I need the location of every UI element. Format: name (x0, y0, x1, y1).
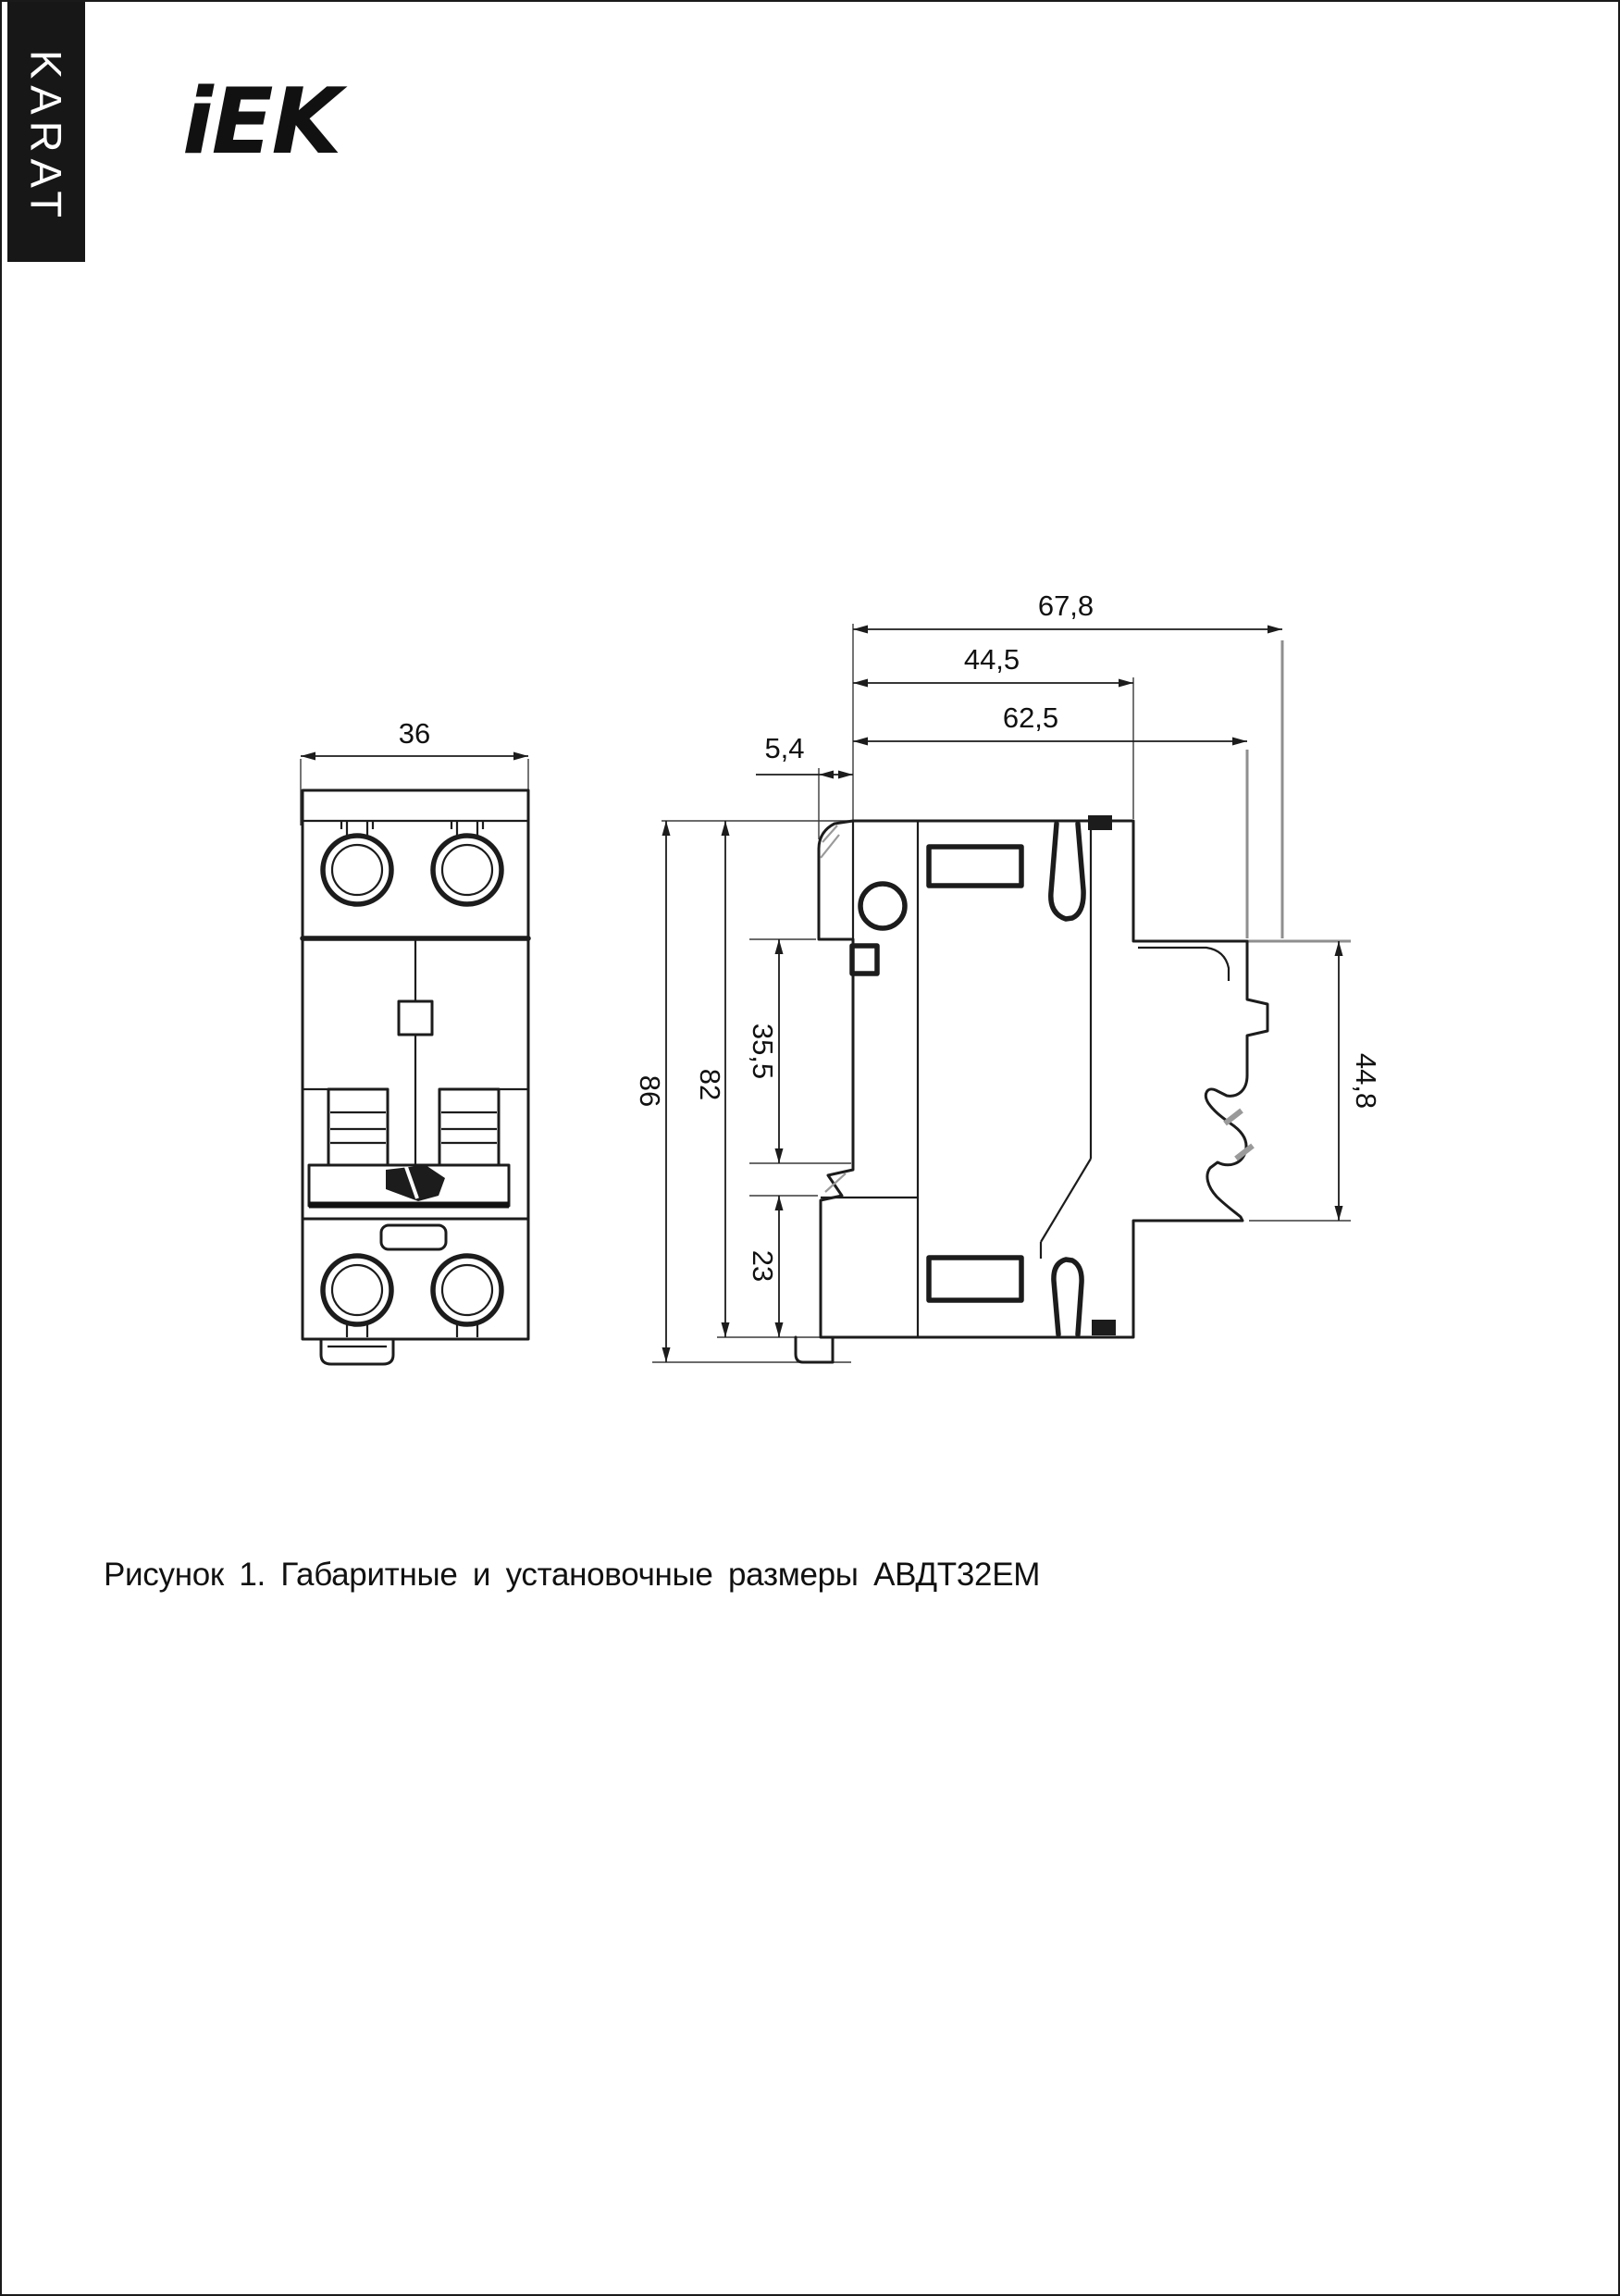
front-bottom-clip (321, 1339, 393, 1364)
dim-overall-height: 86 (634, 1075, 666, 1107)
upper-terminal-left (323, 822, 391, 904)
lower-terminal-left (323, 1256, 391, 1337)
side-bottom-clip (796, 1337, 833, 1362)
dim-overall-depth: 67,8 (1038, 590, 1094, 622)
figure-caption: Рисунок 1. Габаритные и установочные раз… (104, 1557, 1121, 1594)
front-window (399, 1001, 432, 1035)
test-button (860, 884, 905, 928)
lower-terminal-right (433, 1256, 501, 1337)
toggle-right (439, 1089, 499, 1165)
dimension-drawing: 36 67,8 44,5 62,5 5,4 86 82 35,5 23 44,8 (2, 2, 1620, 2296)
dim-din-height: 44,8 (1350, 1053, 1382, 1109)
datasheet-page: KARAT iEK (0, 0, 1620, 2296)
dim-front-width: 36 (399, 717, 430, 750)
terminal-funnel-top (1051, 815, 1112, 919)
dim-din-depth: 62,5 (1003, 701, 1058, 734)
extension-lines (301, 624, 1351, 1362)
upper-terminal-right (433, 822, 501, 904)
dim-body-height: 82 (694, 1069, 726, 1100)
gray-extension-lines (1140, 640, 1351, 941)
dim-handle-protrusion: 5,4 (764, 732, 804, 764)
terminal-funnel-bottom (1054, 1260, 1116, 1335)
dim-lower-height: 23 (747, 1250, 779, 1282)
din-slot-lip (1138, 948, 1229, 981)
toggle-left (328, 1089, 388, 1165)
dimension-texts: 36 67,8 44,5 62,5 5,4 86 82 35,5 23 44,8 (399, 590, 1382, 1282)
front-view (303, 790, 528, 1364)
side-label-bottom (929, 1258, 1021, 1300)
side-label-top (929, 847, 1021, 886)
side-profile (819, 821, 1268, 1337)
indicator-window (381, 1225, 446, 1249)
front-detail-square (852, 946, 877, 974)
side-view (796, 815, 1268, 1362)
dim-mid-height: 35,5 (747, 1024, 779, 1079)
dim-body-depth: 44,5 (964, 643, 1020, 676)
interlock-bar (309, 1165, 509, 1206)
